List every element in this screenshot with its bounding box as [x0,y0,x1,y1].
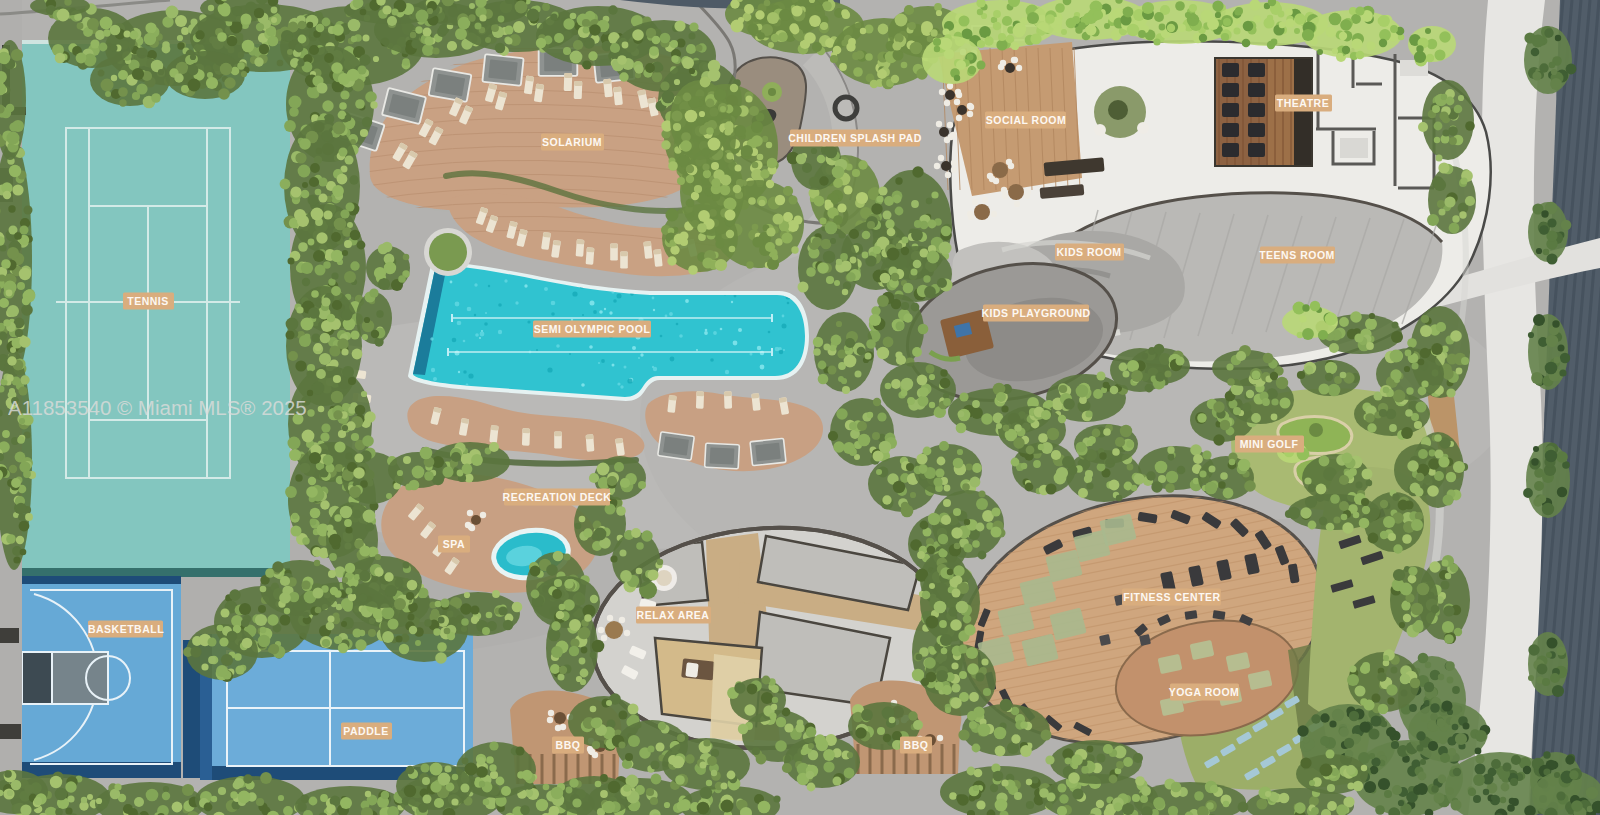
svg-text:SOLARIUM: SOLARIUM [542,136,602,148]
svg-text:SEMI OLYMPIC POOL: SEMI OLYMPIC POOL [534,323,651,335]
svg-text:THEATRE: THEATRE [1277,97,1329,109]
svg-text:FITNESS CENTER: FITNESS CENTER [1123,591,1220,603]
svg-text:KIDS ROOM: KIDS ROOM [1056,246,1121,258]
svg-text:A11853540 © Miami MLS® 2025: A11853540 © Miami MLS® 2025 [8,396,307,419]
svg-text:RELAX AREA: RELAX AREA [637,609,710,621]
svg-text:MINI GOLF: MINI GOLF [1240,438,1299,450]
svg-text:YOGA ROOM: YOGA ROOM [1169,686,1240,698]
svg-text:BASKETBALL: BASKETBALL [88,623,164,635]
svg-text:KIDS PLAYGROUND: KIDS PLAYGROUND [981,307,1090,319]
svg-text:TEENS ROOM: TEENS ROOM [1259,249,1335,261]
svg-text:SOCIAL ROOM: SOCIAL ROOM [986,114,1067,126]
svg-text:BBQ: BBQ [556,739,581,751]
svg-text:BBQ: BBQ [904,739,929,751]
svg-text:TENNIS: TENNIS [127,295,169,307]
svg-text:CHILDREN SPLASH PAD: CHILDREN SPLASH PAD [788,132,922,144]
svg-text:SPA: SPA [443,538,465,550]
svg-text:RECREATION DECK: RECREATION DECK [503,491,612,503]
svg-text:PADDLE: PADDLE [343,725,388,737]
